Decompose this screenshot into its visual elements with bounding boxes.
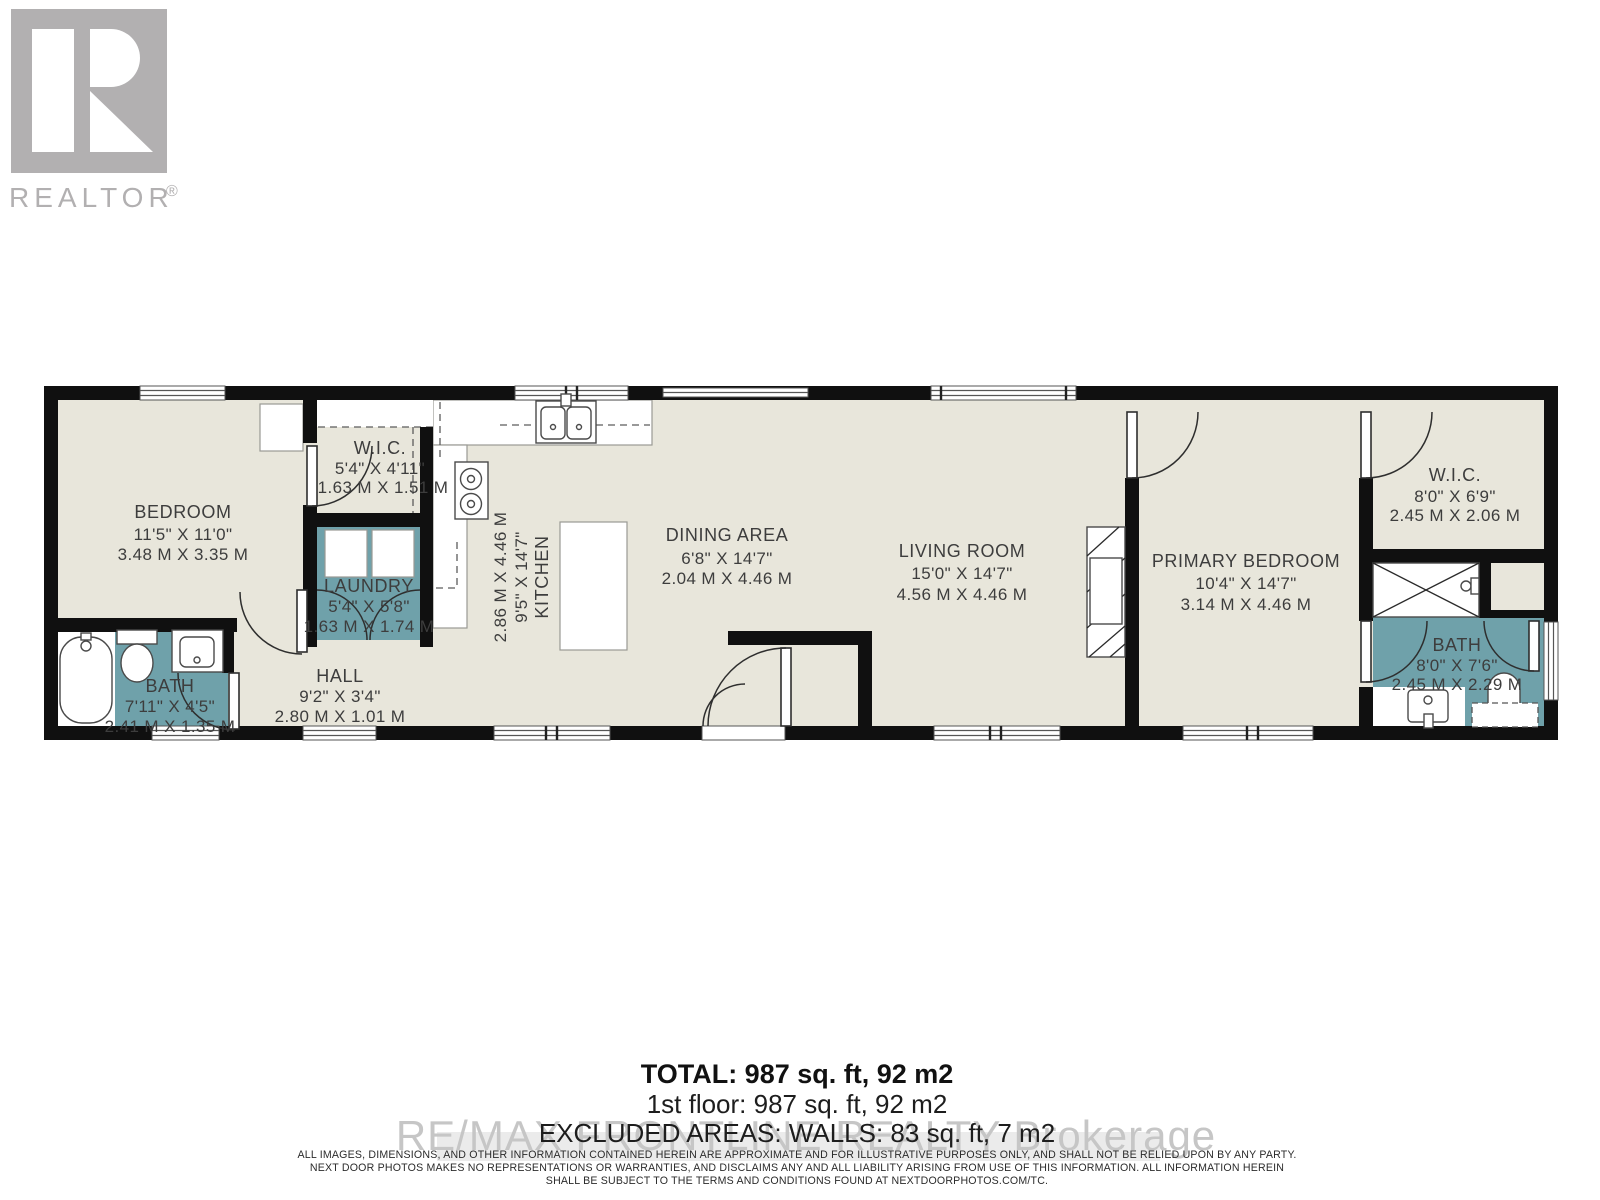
disclaimer-line-2: NEXT DOOR PHOTOS MAKES NO REPRESENTATION… (310, 1162, 1284, 1174)
svg-text:1.63 M X 1.51 M: 1.63 M X 1.51 M (318, 478, 449, 497)
svg-text:9'5" X 14'7": 9'5" X 14'7" (512, 531, 531, 622)
window-bath-right-side (1544, 622, 1558, 700)
svg-text:5'4" X 4'11": 5'4" X 4'11" (335, 459, 425, 478)
label-living-room: LIVING ROOM 15'0" X 14'7" 4.56 M X 4.46 … (897, 541, 1028, 604)
svg-text:2.45 M X 2.06 M: 2.45 M X 2.06 M (1390, 506, 1521, 525)
svg-text:BATH: BATH (145, 676, 194, 696)
window-kitchen-bottom (494, 726, 610, 740)
svg-text:6'8" X 14'7": 6'8" X 14'7" (681, 549, 772, 568)
svg-text:LIVING ROOM: LIVING ROOM (899, 541, 1026, 561)
svg-text:PRIMARY BEDROOM: PRIMARY BEDROOM (1152, 551, 1340, 571)
kitchen-sink (536, 394, 596, 443)
bathtub-right (1373, 563, 1479, 617)
svg-text:10'4" X 14'7": 10'4" X 14'7" (1195, 574, 1296, 593)
fireplace (1087, 527, 1125, 657)
svg-text:LAUNDRY: LAUNDRY (324, 576, 414, 596)
svg-text:3.48 M X 3.35 M: 3.48 M X 3.35 M (118, 545, 249, 564)
wic-left-shelf (317, 400, 433, 427)
svg-text:W.I.C.: W.I.C. (354, 438, 407, 458)
window-hall-bottom (303, 726, 376, 740)
svg-text:BEDROOM: BEDROOM (134, 502, 231, 522)
svg-text:KITCHEN: KITCHEN (532, 535, 552, 618)
svg-text:7'11" X 4'5": 7'11" X 4'5" (125, 697, 215, 716)
svg-text:11'5" X 11'0": 11'5" X 11'0" (134, 525, 233, 544)
bathtub-left (60, 633, 112, 723)
window-primary-bottom (1183, 726, 1313, 740)
label-bedroom: BEDROOM 11'5" X 11'0" 3.48 M X 3.35 M (118, 502, 249, 564)
washer (325, 530, 367, 577)
svg-text:9'2" X 3'4": 9'2" X 3'4" (299, 687, 381, 706)
svg-text:2.80 M X 1.01 M: 2.80 M X 1.01 M (275, 707, 406, 726)
svg-text:5'4" X 5'8": 5'4" X 5'8" (328, 597, 410, 616)
floor-plan-page: REALTOR ® (0, 0, 1600, 1200)
realtor-logo-word: REALTOR (9, 182, 174, 213)
svg-text:8'0" X 7'6": 8'0" X 7'6" (1416, 656, 1498, 675)
svg-text:W.I.C.: W.I.C. (1429, 465, 1482, 485)
first-floor-line: 1st floor: 987 sq. ft, 92 m2 (647, 1089, 948, 1119)
excluded-areas-line: EXCLUDED AREAS: WALLS: 83 sq. ft, 7 m2 (539, 1118, 1055, 1148)
svg-text:2.86 M X 4.46 M: 2.86 M X 4.46 M (491, 512, 510, 643)
vanity-right (1472, 703, 1538, 727)
bath-right-niche (1491, 563, 1544, 610)
svg-text:DINING AREA: DINING AREA (666, 525, 789, 545)
realtor-logo: REALTOR ® (9, 9, 178, 213)
stove (455, 462, 488, 519)
floor-plan: BEDROOM 11'5" X 11'0" 3.48 M X 3.35 M W.… (44, 386, 1558, 740)
svg-text:2.41 M X 1.35 M: 2.41 M X 1.35 M (105, 717, 236, 736)
svg-text:15'0" X 14'7": 15'0" X 14'7" (911, 564, 1012, 583)
registered-mark: ® (166, 183, 178, 200)
total-area-line: TOTAL: 987 sq. ft, 92 m2 (641, 1059, 954, 1089)
realtor-logo-r-stem (32, 29, 74, 152)
toilet-right (1408, 690, 1448, 728)
svg-text:2.04 M X 4.46 M: 2.04 M X 4.46 M (662, 569, 793, 588)
bedroom-closet (260, 404, 303, 451)
svg-text:BATH: BATH (1432, 635, 1481, 655)
window-living-top (931, 386, 1076, 400)
svg-text:3.14 M X 4.46 M: 3.14 M X 4.46 M (1181, 595, 1312, 614)
disclaimer-line-3: SHALL BE SUBJECT TO THE TERMS AND CONDIT… (546, 1175, 1048, 1187)
disclaimer-line-1: ALL IMAGES, DIMENSIONS, AND OTHER INFORM… (298, 1149, 1297, 1161)
svg-text:8'0" X 6'9": 8'0" X 6'9" (1414, 487, 1496, 506)
totals-block: RE/MAX FRONTLINE REALTY Brokerage TOTAL:… (298, 1059, 1297, 1187)
window-dining-transom (663, 388, 808, 397)
kitchen-island (560, 522, 627, 650)
svg-text:4.56 M X 4.46 M: 4.56 M X 4.46 M (897, 585, 1028, 604)
dryer (372, 530, 414, 577)
svg-text:1.63 M X 1.74 M: 1.63 M X 1.74 M (304, 617, 435, 636)
sink-vanity-left (172, 630, 223, 672)
svg-text:2.45 M X 2.29 M: 2.45 M X 2.29 M (1392, 675, 1523, 694)
window-living-bottom (934, 726, 1060, 740)
svg-text:HALL: HALL (316, 666, 363, 686)
window-bedroom-top (140, 386, 225, 400)
